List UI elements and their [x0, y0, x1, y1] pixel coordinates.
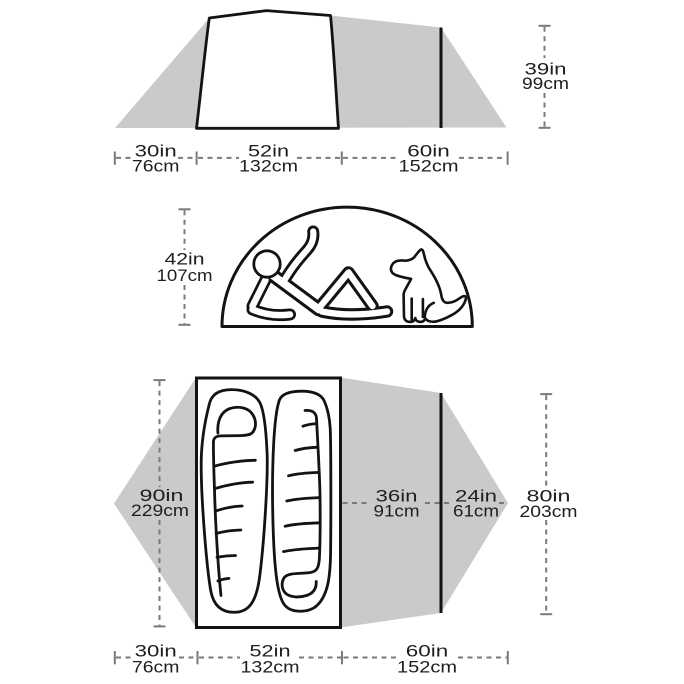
svg-text:132cm: 132cm — [241, 657, 300, 676]
svg-text:99cm: 99cm — [522, 74, 569, 93]
svg-text:152cm: 152cm — [399, 156, 459, 175]
svg-text:203cm: 203cm — [520, 502, 578, 521]
svg-text:91cm: 91cm — [374, 501, 420, 520]
svg-text:107cm: 107cm — [157, 266, 213, 285]
svg-text:76cm: 76cm — [132, 156, 180, 175]
svg-text:229cm: 229cm — [131, 501, 189, 520]
svg-text:76cm: 76cm — [132, 657, 180, 676]
svg-text:132cm: 132cm — [239, 156, 298, 175]
svg-text:152cm: 152cm — [397, 657, 457, 676]
svg-text:61cm: 61cm — [453, 501, 499, 520]
